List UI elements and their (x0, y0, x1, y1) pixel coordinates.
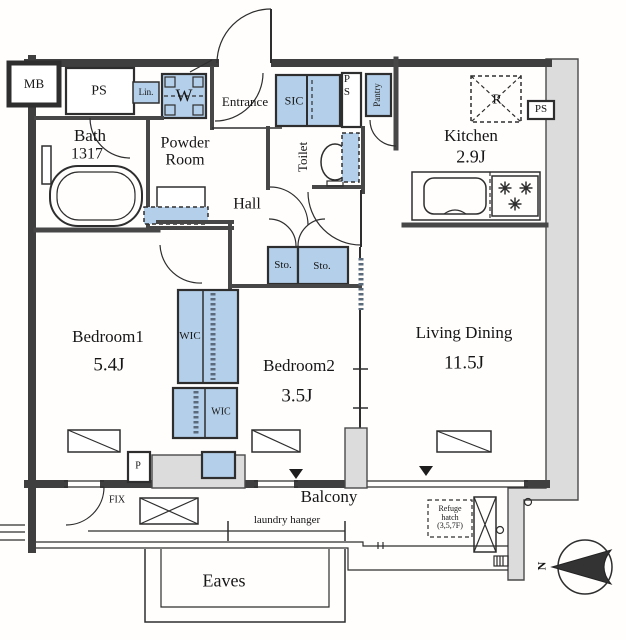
pantry-label: Pantry (373, 83, 383, 107)
floor-plan: MB PS Lin. W Entrance SIC PS Pantry Bath… (0, 0, 626, 640)
ps-top-label: PS (91, 83, 107, 98)
exterior-wall-right (508, 59, 578, 580)
storage-closets (232, 219, 360, 286)
kitchen-label: Kitchen (444, 127, 498, 145)
storage-door-arc (269, 219, 296, 246)
powder-room-label: Powder Room (161, 135, 210, 170)
sic-label: SIC (285, 95, 304, 108)
wic-upper-label: WIC (179, 331, 200, 343)
living-dining-size-label: 11.5J (444, 354, 484, 375)
ps-mid-label: PS (340, 73, 352, 99)
refuge-hatch-label: Refuge hatch (3,5,7F) (437, 505, 463, 531)
bedroom2-size-label: 3.5J (281, 387, 312, 408)
pantry-door-arc (370, 120, 396, 146)
bath-counter (42, 146, 51, 184)
storage-door-arc (298, 219, 325, 246)
bedroom1-door-arc (160, 245, 202, 283)
washlet-panel (342, 133, 359, 182)
linen-label: Lin. (139, 88, 154, 98)
toilet-room (268, 128, 363, 225)
bath-size-label: 1317 (71, 145, 103, 162)
south-pillar-block2 (345, 428, 367, 488)
sink-icon (424, 178, 486, 214)
living-door-arc (308, 192, 361, 245)
bedroom1-label: Bedroom1 (72, 328, 144, 346)
bedroom1-window (68, 430, 120, 452)
stove-icon (492, 176, 538, 216)
bath-label: Bath (74, 127, 106, 145)
living-dining-label: Living Dining (416, 324, 513, 342)
p-label: P (135, 462, 141, 473)
drain-circle (497, 527, 504, 534)
vent-grate-icon (494, 556, 508, 566)
eaves-label: Eaves (203, 571, 246, 590)
refrigerator-label: R (492, 92, 501, 107)
balcony-label: Balcony (301, 488, 358, 506)
balcony-door-arc (66, 487, 104, 525)
bedroom2-window (252, 430, 300, 452)
entrance-label: Entrance (222, 95, 268, 109)
bedroom2-label: Bedroom2 (263, 357, 335, 375)
hatch-x-box (474, 497, 496, 552)
fix-label: FIX (109, 496, 125, 507)
ps-right-label: PS (535, 104, 547, 116)
low-window-icons (68, 430, 491, 452)
balcony-hatch-box (140, 498, 198, 524)
mb-label: MB (24, 77, 44, 91)
kitchen-size-label: 2.9J (456, 147, 486, 166)
compass-north-label: N (536, 562, 549, 571)
powder-line2: Room (161, 152, 210, 169)
powder-line1: Powder (161, 135, 210, 152)
storage2-label: Sto. (313, 261, 330, 273)
hall-label: Hall (233, 195, 261, 212)
laundry-hanger-label: laundry hanger (254, 515, 320, 527)
compass-icon (552, 540, 612, 594)
wic-lower-label: WIC (211, 408, 230, 419)
toilet-label: Toilet (296, 142, 310, 172)
kitchen-counter (412, 172, 540, 220)
washer-label: W (176, 86, 193, 105)
bedroom1-size-label: 5.4J (93, 356, 124, 377)
small-south-window (202, 452, 235, 478)
living-window (437, 431, 491, 452)
storage1-label: Sto. (274, 260, 291, 272)
bathtub-icon (50, 166, 142, 226)
refuge-line3: (3,5,7F) (437, 522, 463, 531)
